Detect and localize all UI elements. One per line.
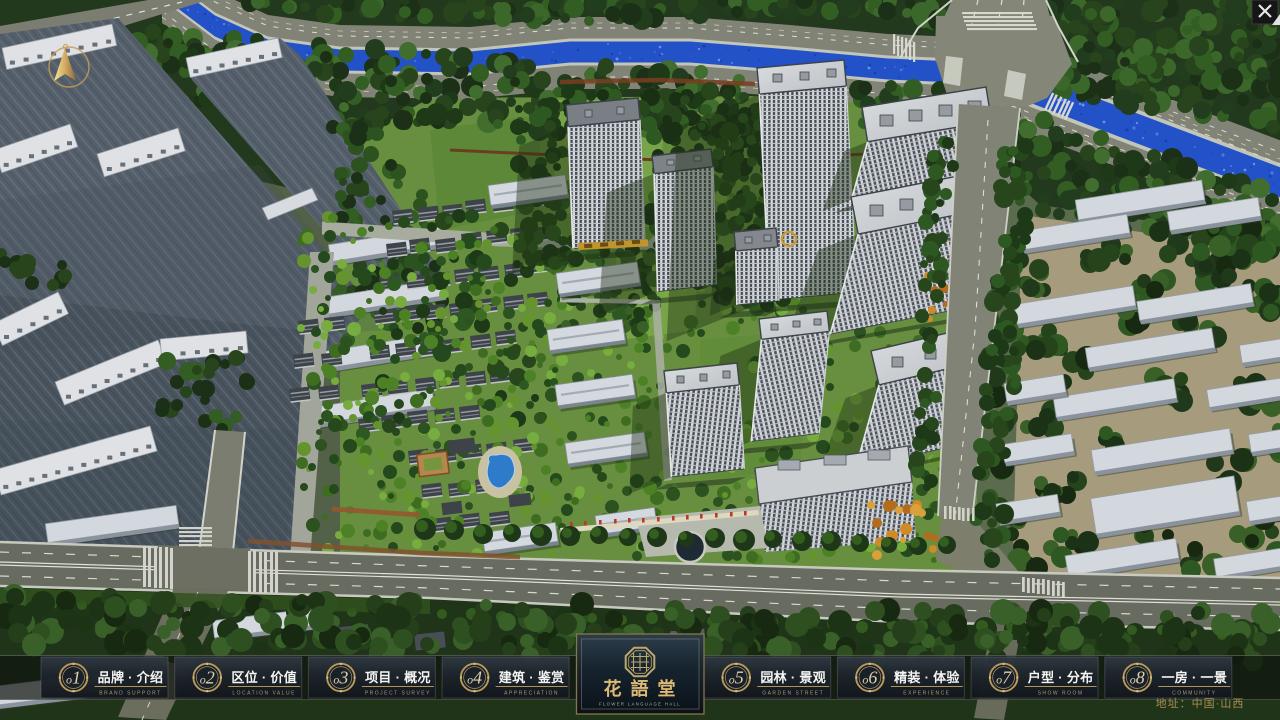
svg-text:园林 · 景观: 园林 · 景观 (760, 670, 826, 685)
svg-text:项目 · 概况: 项目 · 概况 (365, 670, 431, 685)
svg-text:一房 · 一景: 一房 · 一景 (1161, 670, 1227, 685)
svg-text:区位 · 价值: 区位 · 价值 (231, 670, 297, 685)
svg-text:建筑 · 鉴赏: 建筑 · 鉴赏 (499, 670, 565, 685)
svg-text:花語堂: 花語堂 (604, 678, 685, 699)
svg-text:LOCATION VALUE: LOCATION VALUE (232, 691, 296, 697)
svg-text:COMMUNITY: COMMUNITY (1172, 691, 1216, 697)
svg-text:SHOW ROOM: SHOW ROOM (1038, 691, 1084, 697)
svg-text:EXPERIENCE: EXPERIENCE (903, 691, 950, 697)
svg-text:品牌 · 介绍: 品牌 · 介绍 (98, 670, 164, 685)
svg-text:GARDEN STREET: GARDEN STREET (762, 691, 824, 697)
svg-text:户型 · 分布: 户型 · 分布 (1028, 670, 1094, 685)
svg-text:APPRECIATION: APPRECIATION (504, 691, 559, 697)
svg-text:BRAND SUPPORT: BRAND SUPPORT (99, 691, 161, 697)
svg-text:FLOWER LANGUAGE HALL: FLOWER LANGUAGE HALL (599, 702, 681, 707)
svg-text:地址：中国·山西: 地址：中国·山西 (1156, 696, 1245, 710)
svg-text:PROJECT SURVEY: PROJECT SURVEY (365, 691, 431, 697)
svg-text:精装 · 体验: 精装 · 体验 (894, 670, 960, 685)
